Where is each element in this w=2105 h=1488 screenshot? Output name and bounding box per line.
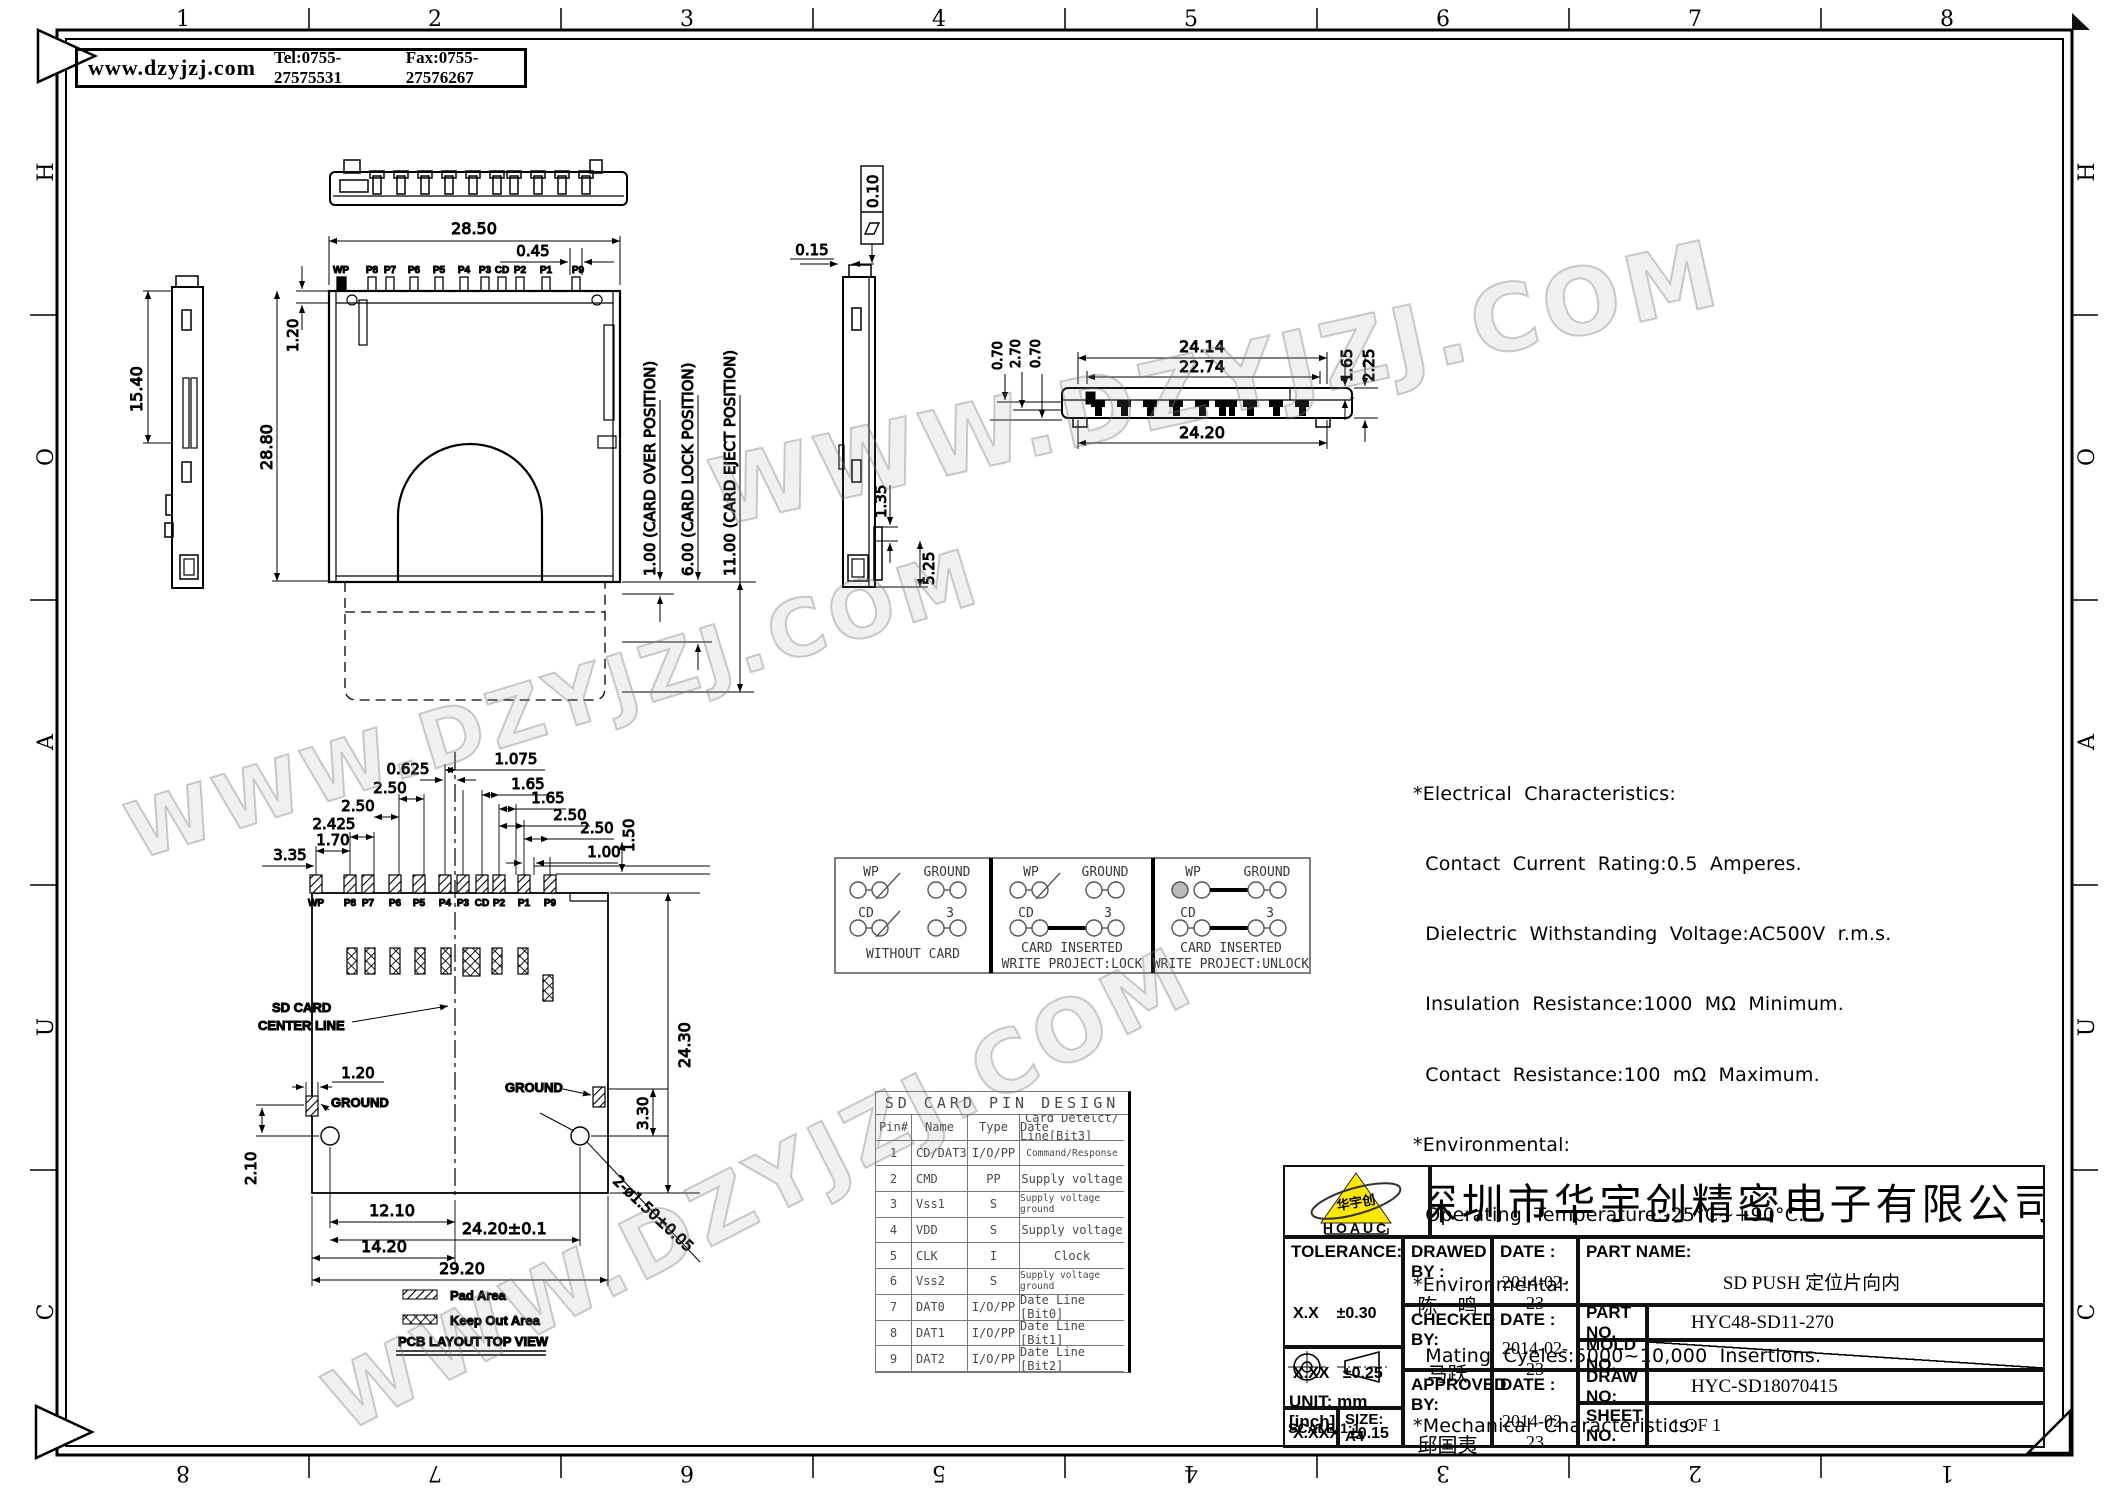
switch-label: CD bbox=[1018, 906, 1034, 921]
cell: Vss1 bbox=[912, 1192, 968, 1218]
cell: 4 bbox=[876, 1218, 912, 1244]
dim-0-15: 0.15 bbox=[795, 241, 828, 259]
zone-col: 2 bbox=[428, 7, 442, 32]
pin-label: WP bbox=[333, 265, 349, 276]
pin-label: P8 bbox=[344, 898, 357, 909]
ground-label: GROUND bbox=[331, 1095, 389, 1110]
date-value: 2014-02-23 bbox=[1494, 1411, 1576, 1453]
center-line-label: CENTER LINE bbox=[258, 1018, 345, 1033]
spec-line: *Environmental: bbox=[1413, 1134, 1891, 1157]
zone-row: H bbox=[2075, 162, 2100, 181]
dim: 14.20 bbox=[361, 1237, 407, 1256]
pin-table-title: SD CARD PIN DESIGN bbox=[876, 1092, 1128, 1115]
sheet-no-label-cell: SHEET NO. bbox=[1578, 1403, 1647, 1448]
dim: 1.70 bbox=[316, 831, 349, 849]
approved-by-cell: APPROVED BY: 邱国夷 bbox=[1403, 1370, 1492, 1448]
dim-28-80: 28.80 bbox=[257, 424, 276, 470]
cell: 5 bbox=[876, 1243, 912, 1269]
pin-label: P4 bbox=[458, 265, 471, 276]
cell: CLK bbox=[912, 1243, 968, 1269]
first-angle-projection-icon bbox=[1285, 1349, 1401, 1385]
part-name-value: SD PUSH 定位片向内 bbox=[1580, 1268, 2043, 1295]
dim: 24.20±0.1 bbox=[462, 1219, 547, 1238]
cell: DAT1 bbox=[912, 1321, 968, 1347]
cell: I/O/PP bbox=[968, 1295, 1020, 1321]
cell: Date Line [Bit1] bbox=[1020, 1321, 1124, 1347]
zone-row: A bbox=[2075, 733, 2100, 751]
cell: Supply voltage ground bbox=[1020, 1192, 1124, 1218]
dim-1-35: 1.35 bbox=[872, 485, 890, 518]
col-header-type: Type bbox=[968, 1115, 1020, 1141]
right-side-view: 0.10 0.15 1.35 5.25 bbox=[790, 166, 938, 587]
switch-label: CD bbox=[858, 906, 874, 921]
switch-caption: WRITE PROJECT:UNLOCK bbox=[1153, 957, 1310, 972]
corner-mark-icon bbox=[2072, 13, 2090, 30]
zone-col: 5 bbox=[1184, 7, 1198, 32]
zone-row: O bbox=[2075, 448, 2100, 466]
pin-label: P7 bbox=[384, 265, 397, 276]
dim: 2.50 bbox=[373, 779, 406, 797]
zone-row: U bbox=[2075, 1018, 2100, 1037]
pin-label: CD bbox=[475, 898, 489, 909]
ground-label: GROUND bbox=[505, 1080, 563, 1095]
empty-cell-diagonal bbox=[1649, 1342, 2043, 1368]
dim-0-70b: 0.70 bbox=[1029, 339, 1044, 368]
dim-15-40: 15.40 bbox=[127, 366, 146, 412]
cell: S bbox=[968, 1218, 1020, 1244]
switch-label: 3 bbox=[1104, 906, 1112, 921]
dim: 12.10 bbox=[369, 1201, 415, 1220]
cell: Command/Response bbox=[1020, 1141, 1124, 1167]
company-name-cell: 深圳市华宇创精密电子有限公司 bbox=[1430, 1165, 2045, 1237]
spec-line: Contact Current Rating:0.5 Amperes. bbox=[1413, 853, 1891, 876]
zone-col: 4 bbox=[1184, 1460, 1198, 1485]
cell: CD/DAT3 bbox=[912, 1141, 968, 1167]
dim: 1.075 bbox=[495, 750, 538, 768]
dim: 2.10 bbox=[242, 1152, 260, 1185]
dim: 1.00 bbox=[587, 843, 620, 861]
cell: Vss2 bbox=[912, 1269, 968, 1295]
spec-line: Contact Resistance:100 mΩ Maximum. bbox=[1413, 1064, 1891, 1087]
dim-5-25: 5.25 bbox=[920, 552, 938, 585]
pin-label: P2 bbox=[493, 898, 506, 909]
cell: S bbox=[968, 1269, 1020, 1295]
cell: S bbox=[968, 1192, 1020, 1218]
cell: CMD bbox=[912, 1166, 968, 1192]
pcb-view-title: PCB LAYOUT TOP VIEW bbox=[398, 1334, 549, 1349]
drawed-by-cell: DRAWED BY : 陈一鸣 bbox=[1403, 1237, 1492, 1305]
date-cell: DATE : 2014-02-23 bbox=[1492, 1305, 1578, 1370]
pin-label: P9 bbox=[544, 898, 557, 909]
switch-label: GROUND bbox=[1244, 865, 1291, 880]
cell: VDD bbox=[912, 1218, 968, 1244]
pcb-layout: WP P8 P7 P6 P5 P4 P3 CD P2 P1 P9 bbox=[242, 750, 710, 1355]
dim: 3.35 bbox=[273, 846, 306, 864]
mold-no-value-cell bbox=[1647, 1340, 2045, 1370]
size-cell: SIZE: A4 bbox=[1338, 1408, 1403, 1448]
dim-0-45: 0.45 bbox=[516, 242, 549, 260]
pin-label: P2 bbox=[514, 265, 527, 276]
dim-22-74: 22.74 bbox=[1179, 357, 1225, 376]
dim-2-25: 2.25 bbox=[1360, 349, 1378, 382]
pin-label: CD bbox=[495, 265, 509, 276]
zone-row: O bbox=[34, 448, 59, 466]
switch-label: WP bbox=[1023, 865, 1039, 880]
cell: 6 bbox=[876, 1269, 912, 1295]
dim-2-70: 2.70 bbox=[1009, 339, 1024, 368]
zone-col: 8 bbox=[1940, 7, 1954, 32]
zone-col: 7 bbox=[428, 1460, 442, 1485]
pcb-pin-labels: WP P8 P7 P6 P5 P4 P3 CD P2 P1 P9 bbox=[308, 898, 557, 909]
dim-1-65: 1.65 bbox=[1338, 349, 1356, 382]
dim-0-70: 0.70 bbox=[991, 341, 1006, 370]
zone-col: 5 bbox=[932, 1460, 946, 1485]
spec-line: Dielectric Withstanding Voltage:AC500V r… bbox=[1413, 923, 1891, 946]
zone-row: U bbox=[34, 1018, 59, 1037]
dim-card-lock: 6.00 (CARD LOCK POSITION) bbox=[679, 363, 697, 576]
pin-label: P6 bbox=[408, 265, 421, 276]
dim: 2.425 bbox=[313, 815, 356, 833]
website-url: www.dzyjzj.com bbox=[88, 55, 256, 81]
date-cell: DATE : 2014-02-23 bbox=[1492, 1237, 1578, 1305]
fax-number: Fax:0755-27576267 bbox=[406, 48, 524, 88]
zone-col: 4 bbox=[932, 7, 946, 32]
company-logo-icon: 华宇创 HOAUC bbox=[1285, 1167, 1428, 1235]
dim-card-eject: 11.00 (CARD EJECT POSITION) bbox=[721, 350, 739, 576]
tolerance-cell: TOLERANCE: X.X ±0.30 X.XX ±0.25 X.XXX ±0… bbox=[1283, 1237, 1403, 1347]
zone-col: 8 bbox=[176, 1460, 190, 1485]
zone-col: 3 bbox=[680, 7, 694, 32]
cell: 3 bbox=[876, 1192, 912, 1218]
drawing-sheet: WWW.DZYJZJ.COM WWW.DZYJZJ.COM WWW.DZYJZJ… bbox=[0, 0, 2105, 1488]
pin-label: P4 bbox=[439, 898, 452, 909]
dim: 29.20 bbox=[439, 1259, 485, 1278]
zone-col: 1 bbox=[176, 7, 190, 32]
mold-no-label-cell: MOLD NO. bbox=[1578, 1340, 1647, 1370]
part-no-value-cell: HYC48-SD11-270 bbox=[1647, 1305, 2045, 1340]
cell: 2 bbox=[876, 1166, 912, 1192]
bottom-view-pins bbox=[1091, 400, 1309, 416]
cell: DAT0 bbox=[912, 1295, 968, 1321]
checked-by-cell: CHECKED BY: 马跃 bbox=[1403, 1305, 1492, 1370]
logo-cell: 华宇创 HOAUC bbox=[1283, 1165, 1430, 1237]
left-side-view: 15.40 bbox=[127, 276, 203, 588]
cell: Supply voltage ground bbox=[1020, 1269, 1124, 1295]
dim: 3.30 bbox=[634, 1097, 652, 1130]
switch-label: WP bbox=[1185, 865, 1201, 880]
dim-1-20: 1.20 bbox=[284, 319, 302, 352]
dim-card-over: 1.00 (CARD OVER POSITION) bbox=[641, 361, 659, 576]
zone-col: 1 bbox=[1940, 1460, 1954, 1485]
switch-label: WP bbox=[863, 865, 879, 880]
switch-label: CD bbox=[1180, 906, 1196, 921]
pin-label: P3 bbox=[457, 898, 470, 909]
dim-hole-callout: 2-ø1.50±0.05 bbox=[609, 1172, 697, 1256]
switch-diagrams: WP GROUND CD 3 WITHOUT CARD WP GROUND CD… bbox=[835, 858, 1310, 973]
svg-text:HOAUC: HOAUC bbox=[1323, 1220, 1389, 1235]
pin-label: P6 bbox=[389, 898, 402, 909]
col-header-pin: Pin# bbox=[876, 1115, 912, 1141]
pin-label: P5 bbox=[413, 898, 426, 909]
bottom-view: 24.14 22.74 24.20 1.65 2.25 bbox=[990, 337, 1378, 449]
title-block: 华宇创 HOAUC 深圳市华宇创精密电子有限公司 TOLERANCE: X.X … bbox=[1283, 1165, 2045, 1448]
dim: 1.20 bbox=[341, 1064, 374, 1082]
corner-arrow-icon bbox=[36, 1406, 92, 1458]
pin-label: P1 bbox=[518, 898, 531, 909]
switch-panel-lock: WP GROUND CD 3 CARD INSERTED WRITE PROJE… bbox=[1002, 865, 1143, 972]
legend-pad-swatch bbox=[403, 1290, 437, 1299]
cell: Clock bbox=[1020, 1243, 1124, 1269]
cell: DAT2 bbox=[912, 1346, 968, 1372]
scale-cell: SCALE:1:1 bbox=[1283, 1408, 1338, 1448]
dim: 1.50 bbox=[620, 819, 638, 852]
pin-label: WP bbox=[308, 898, 324, 909]
cell: 8 bbox=[876, 1321, 912, 1347]
top-strip-view bbox=[330, 160, 627, 205]
header-contact-box: www.dzyjzj.com Tel:0755-27575531 Fax:075… bbox=[75, 48, 527, 88]
center-line-label: SD CARD bbox=[272, 1000, 331, 1015]
cell: Date Line [Bit2] bbox=[1020, 1346, 1124, 1372]
zone-row: C bbox=[2075, 1304, 2100, 1321]
dim: 2.50 bbox=[580, 819, 613, 837]
dim: 1.65 bbox=[531, 789, 564, 807]
legend-keepout-swatch bbox=[403, 1315, 437, 1324]
switch-caption: CARD INSERTED bbox=[1021, 941, 1123, 956]
cell: I/O/PP bbox=[968, 1321, 1020, 1347]
dim: 2.50 bbox=[341, 797, 374, 815]
switch-label: 3 bbox=[946, 906, 954, 921]
dim: 24.30 bbox=[675, 1022, 694, 1068]
switch-label: 3 bbox=[1266, 906, 1274, 921]
cell: PP bbox=[968, 1166, 1020, 1192]
switch-caption: WRITE PROJECT:LOCK bbox=[1002, 957, 1143, 972]
pin-label: P1 bbox=[540, 265, 553, 276]
part-name-cell: PART NAME: SD PUSH 定位片向内 bbox=[1578, 1237, 2045, 1305]
pin-label: P9 bbox=[572, 265, 585, 276]
switch-caption: WITHOUT CARD bbox=[866, 947, 960, 962]
zone-row: A bbox=[34, 733, 59, 751]
approved-by-name: 邱国夷 bbox=[1405, 1429, 1490, 1458]
company-name: 深圳市华宇创精密电子有限公司 bbox=[1430, 1171, 2045, 1232]
zone-col: 6 bbox=[680, 1460, 694, 1485]
legend-pad-label: Pad Area bbox=[450, 1288, 507, 1303]
zone-row: H bbox=[34, 162, 59, 181]
dim-24-14: 24.14 bbox=[1179, 337, 1225, 356]
pin-table: SD CARD PIN DESIGN Pin# Name Type Card D… bbox=[875, 1091, 1131, 1373]
zone-col: 6 bbox=[1436, 7, 1450, 32]
front-view: WP P8 P7 P6 P5 P4 P3 CD P2 P1 P9 28.50 bbox=[257, 219, 756, 700]
switch-panel-unlock: WP GROUND CD 3 CARD INSERTED WRITE PROJE… bbox=[1153, 865, 1310, 972]
cell: 1 bbox=[876, 1141, 912, 1167]
tolerance-angle-row: X.° ±2° X.X° ±0.5° bbox=[1293, 1484, 1401, 1488]
pin-label: P8 bbox=[366, 265, 379, 276]
dim: 0.625 bbox=[387, 760, 430, 778]
zone-col: 7 bbox=[1688, 7, 1702, 32]
cell: I/O/PP bbox=[968, 1141, 1020, 1167]
sheet-no-value-cell: 1 OF 1 bbox=[1647, 1403, 2045, 1448]
pin-label: P7 bbox=[362, 898, 375, 909]
cell: Supply voltage bbox=[1020, 1166, 1124, 1192]
legend-keepout-label: Keep Out Area bbox=[450, 1313, 541, 1328]
zone-row: C bbox=[34, 1304, 59, 1321]
date-cell: DATE : 2014-02-23 bbox=[1492, 1370, 1578, 1448]
pin-label: P3 bbox=[479, 265, 492, 276]
spec-line: Insulation Resistance:1000 MΩ Minimum. bbox=[1413, 993, 1891, 1016]
front-pin-labels: WP P8 P7 P6 P5 P4 P3 CD P2 P1 P9 bbox=[333, 265, 585, 276]
cell: Date Line [Bit0] bbox=[1020, 1295, 1124, 1321]
switch-panel-without-card: WP GROUND CD 3 WITHOUT CARD bbox=[850, 865, 971, 962]
dim-24-20: 24.20 bbox=[1179, 423, 1225, 442]
phone-number: Tel:0755-27575531 bbox=[274, 48, 388, 88]
cell: 7 bbox=[876, 1295, 912, 1321]
col-header-function: Card Detelct/Date Line[Bit3] bbox=[1020, 1115, 1124, 1141]
switch-caption: CARD INSERTED bbox=[1180, 941, 1282, 956]
dim-flatness: 0.10 bbox=[864, 175, 882, 208]
projection-cell: UNIT: mm [inch] bbox=[1283, 1347, 1403, 1408]
cell: Supply voltage bbox=[1020, 1218, 1124, 1244]
draw-no-value-cell: HYC-SD18070415 bbox=[1647, 1370, 2045, 1403]
cell: I/O/PP bbox=[968, 1346, 1020, 1372]
cell: I bbox=[968, 1243, 1020, 1269]
tolerance-row: X.X ±0.30 bbox=[1293, 1304, 1401, 1324]
spec-line: *Electrical Characteristics: bbox=[1413, 783, 1891, 806]
tolerance-label: TOLERANCE: bbox=[1285, 1239, 1401, 1262]
dim-28-50: 28.50 bbox=[451, 219, 497, 238]
pin-label: P5 bbox=[433, 265, 446, 276]
switch-label: GROUND bbox=[924, 865, 971, 880]
col-header-name: Name bbox=[912, 1115, 968, 1141]
draw-no-label-cell: DRAW NO: bbox=[1578, 1370, 1647, 1403]
switch-label: GROUND bbox=[1082, 865, 1129, 880]
cell: 9 bbox=[876, 1346, 912, 1372]
